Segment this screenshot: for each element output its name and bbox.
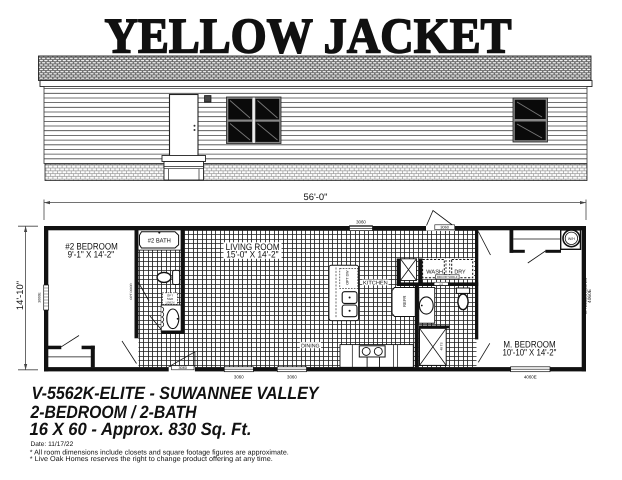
svg-text:14'-10": 14'-10" [14, 281, 25, 310]
svg-text:* Live Oak Homes reserves the: * Live Oak Homes reserves the right to c… [30, 455, 273, 463]
svg-text:DINING: DINING [301, 343, 320, 349]
svg-text:#2 BATH: #2 BATH [148, 237, 171, 244]
svg-text:3060: 3060 [178, 366, 186, 370]
svg-text:REFR: REFR [402, 296, 407, 307]
svg-text:Date: 11/17/22: Date: 11/17/22 [31, 441, 74, 448]
svg-text:56'-0": 56'-0" [304, 191, 328, 202]
svg-text:3060: 3060 [287, 375, 297, 380]
svg-text:LINEN: LINEN [166, 301, 175, 305]
svg-text:48 TS: 48 TS [440, 342, 444, 350]
svg-text:YELLOW JACKET: YELLOW JACKET [105, 8, 512, 64]
svg-text:10'-10" X 14'-2": 10'-10" X 14'-2" [503, 346, 557, 357]
svg-text:15'-0" X 14'-2": 15'-0" X 14'-2" [226, 249, 278, 260]
svg-text:3060: 3060 [356, 220, 366, 225]
svg-text:DECOR SHELF: DECOR SHELF [437, 275, 458, 279]
svg-text:V-5562K-ELITE - SUWANNEE VALLE: V-5562K-ELITE - SUWANNEE VALLEY [32, 383, 321, 403]
svg-text:2-0: 2-0 [439, 283, 443, 286]
svg-text:KITCHEN: KITCHEN [363, 280, 388, 286]
svg-text:W/H: W/H [568, 237, 575, 241]
svg-text:3060: 3060 [234, 375, 244, 380]
svg-text:16 X 60 - Approx. 830 Sq. Ft.: 16 X 60 - Approx. 830 Sq. Ft. [30, 419, 252, 439]
svg-text:9'-1" X 14'-2": 9'-1" X 14'-2" [68, 249, 115, 260]
svg-text:OPT WINDOW LOCATION: OPT WINDOW LOCATION [584, 278, 588, 314]
svg-text:3060: 3060 [440, 226, 448, 230]
svg-text:OPT DW: OPT DW [346, 270, 350, 285]
svg-text:3000E: 3000E [38, 292, 42, 303]
svg-text:4060E: 4060E [524, 375, 537, 380]
svg-text:OPT DOOR: OPT DOOR [129, 283, 133, 300]
